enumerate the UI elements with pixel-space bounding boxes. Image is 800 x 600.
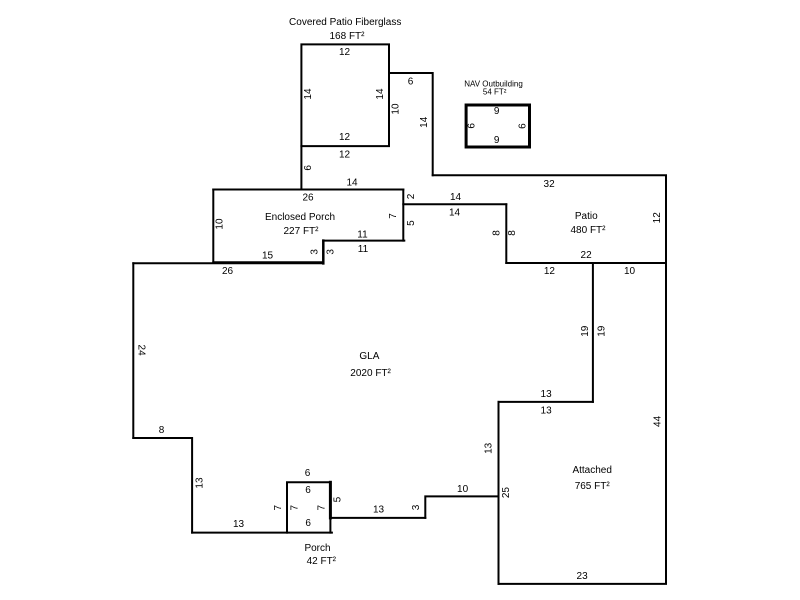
svg-text:10: 10 — [624, 266, 636, 277]
svg-text:10: 10 — [215, 218, 226, 230]
svg-text:6: 6 — [518, 123, 529, 129]
svg-text:22: 22 — [581, 250, 593, 261]
svg-text:765 FT²: 765 FT² — [575, 481, 611, 492]
svg-text:13: 13 — [195, 477, 206, 489]
svg-text:14: 14 — [419, 116, 430, 128]
svg-text:12: 12 — [652, 212, 663, 224]
svg-text:11: 11 — [357, 229, 368, 240]
svg-text:GLA: GLA — [359, 351, 379, 362]
svg-text:7: 7 — [388, 213, 399, 219]
svg-text:Enclosed Porch: Enclosed Porch — [265, 212, 335, 223]
svg-text:5: 5 — [406, 220, 417, 226]
svg-text:6: 6 — [305, 468, 311, 479]
svg-text:2: 2 — [406, 193, 417, 199]
svg-text:14: 14 — [375, 88, 386, 100]
svg-text:6: 6 — [303, 165, 314, 171]
svg-text:23: 23 — [577, 571, 589, 582]
svg-text:7: 7 — [317, 504, 328, 510]
svg-text:25: 25 — [501, 487, 512, 499]
svg-text:Patio: Patio — [575, 211, 598, 222]
svg-text:2020 FT²: 2020 FT² — [350, 368, 391, 379]
svg-text:8: 8 — [507, 230, 518, 236]
svg-text:12: 12 — [339, 132, 351, 143]
svg-text:6: 6 — [305, 485, 311, 496]
svg-text:44: 44 — [653, 415, 664, 427]
svg-text:7: 7 — [290, 504, 301, 510]
svg-text:Covered Patio Fiberglass: Covered Patio Fiberglass — [289, 17, 401, 28]
svg-text:Porch: Porch — [304, 543, 330, 554]
svg-text:54 FT²: 54 FT² — [483, 87, 507, 96]
svg-text:14: 14 — [303, 88, 314, 100]
svg-text:32: 32 — [544, 179, 556, 190]
svg-text:26: 26 — [302, 193, 314, 204]
svg-text:6: 6 — [467, 123, 478, 129]
svg-text:6: 6 — [305, 518, 311, 529]
svg-text:5: 5 — [333, 496, 344, 502]
svg-text:10: 10 — [457, 484, 469, 495]
svg-text:14: 14 — [450, 192, 462, 203]
svg-text:12: 12 — [339, 47, 351, 58]
svg-text:12: 12 — [339, 149, 351, 160]
svg-text:3: 3 — [309, 249, 320, 255]
svg-text:14: 14 — [449, 208, 461, 219]
svg-text:227 FT²: 227 FT² — [283, 226, 319, 237]
svg-text:6: 6 — [408, 76, 414, 87]
svg-text:13: 13 — [541, 389, 553, 400]
svg-text:3: 3 — [411, 504, 422, 510]
svg-text:42 FT²: 42 FT² — [307, 556, 337, 567]
svg-text:8: 8 — [492, 230, 503, 236]
svg-text:13: 13 — [541, 405, 553, 416]
svg-text:Attached: Attached — [572, 465, 611, 476]
svg-text:26: 26 — [222, 266, 234, 277]
svg-text:19: 19 — [580, 325, 591, 337]
svg-text:9: 9 — [494, 106, 500, 117]
svg-text:480 FT²: 480 FT² — [570, 225, 606, 236]
svg-text:13: 13 — [484, 442, 495, 454]
svg-text:3: 3 — [326, 249, 337, 255]
svg-text:14: 14 — [346, 178, 358, 189]
svg-text:10: 10 — [391, 103, 402, 115]
svg-text:19: 19 — [597, 325, 608, 337]
svg-text:24: 24 — [136, 345, 147, 357]
svg-text:13: 13 — [233, 519, 245, 530]
svg-text:13: 13 — [373, 505, 385, 516]
svg-text:15: 15 — [262, 250, 274, 261]
svg-text:11: 11 — [358, 244, 369, 255]
svg-text:8: 8 — [159, 425, 165, 436]
svg-text:12: 12 — [544, 266, 556, 277]
svg-text:9: 9 — [494, 135, 500, 146]
svg-text:7: 7 — [273, 504, 284, 510]
svg-text:168 FT²: 168 FT² — [329, 31, 365, 42]
